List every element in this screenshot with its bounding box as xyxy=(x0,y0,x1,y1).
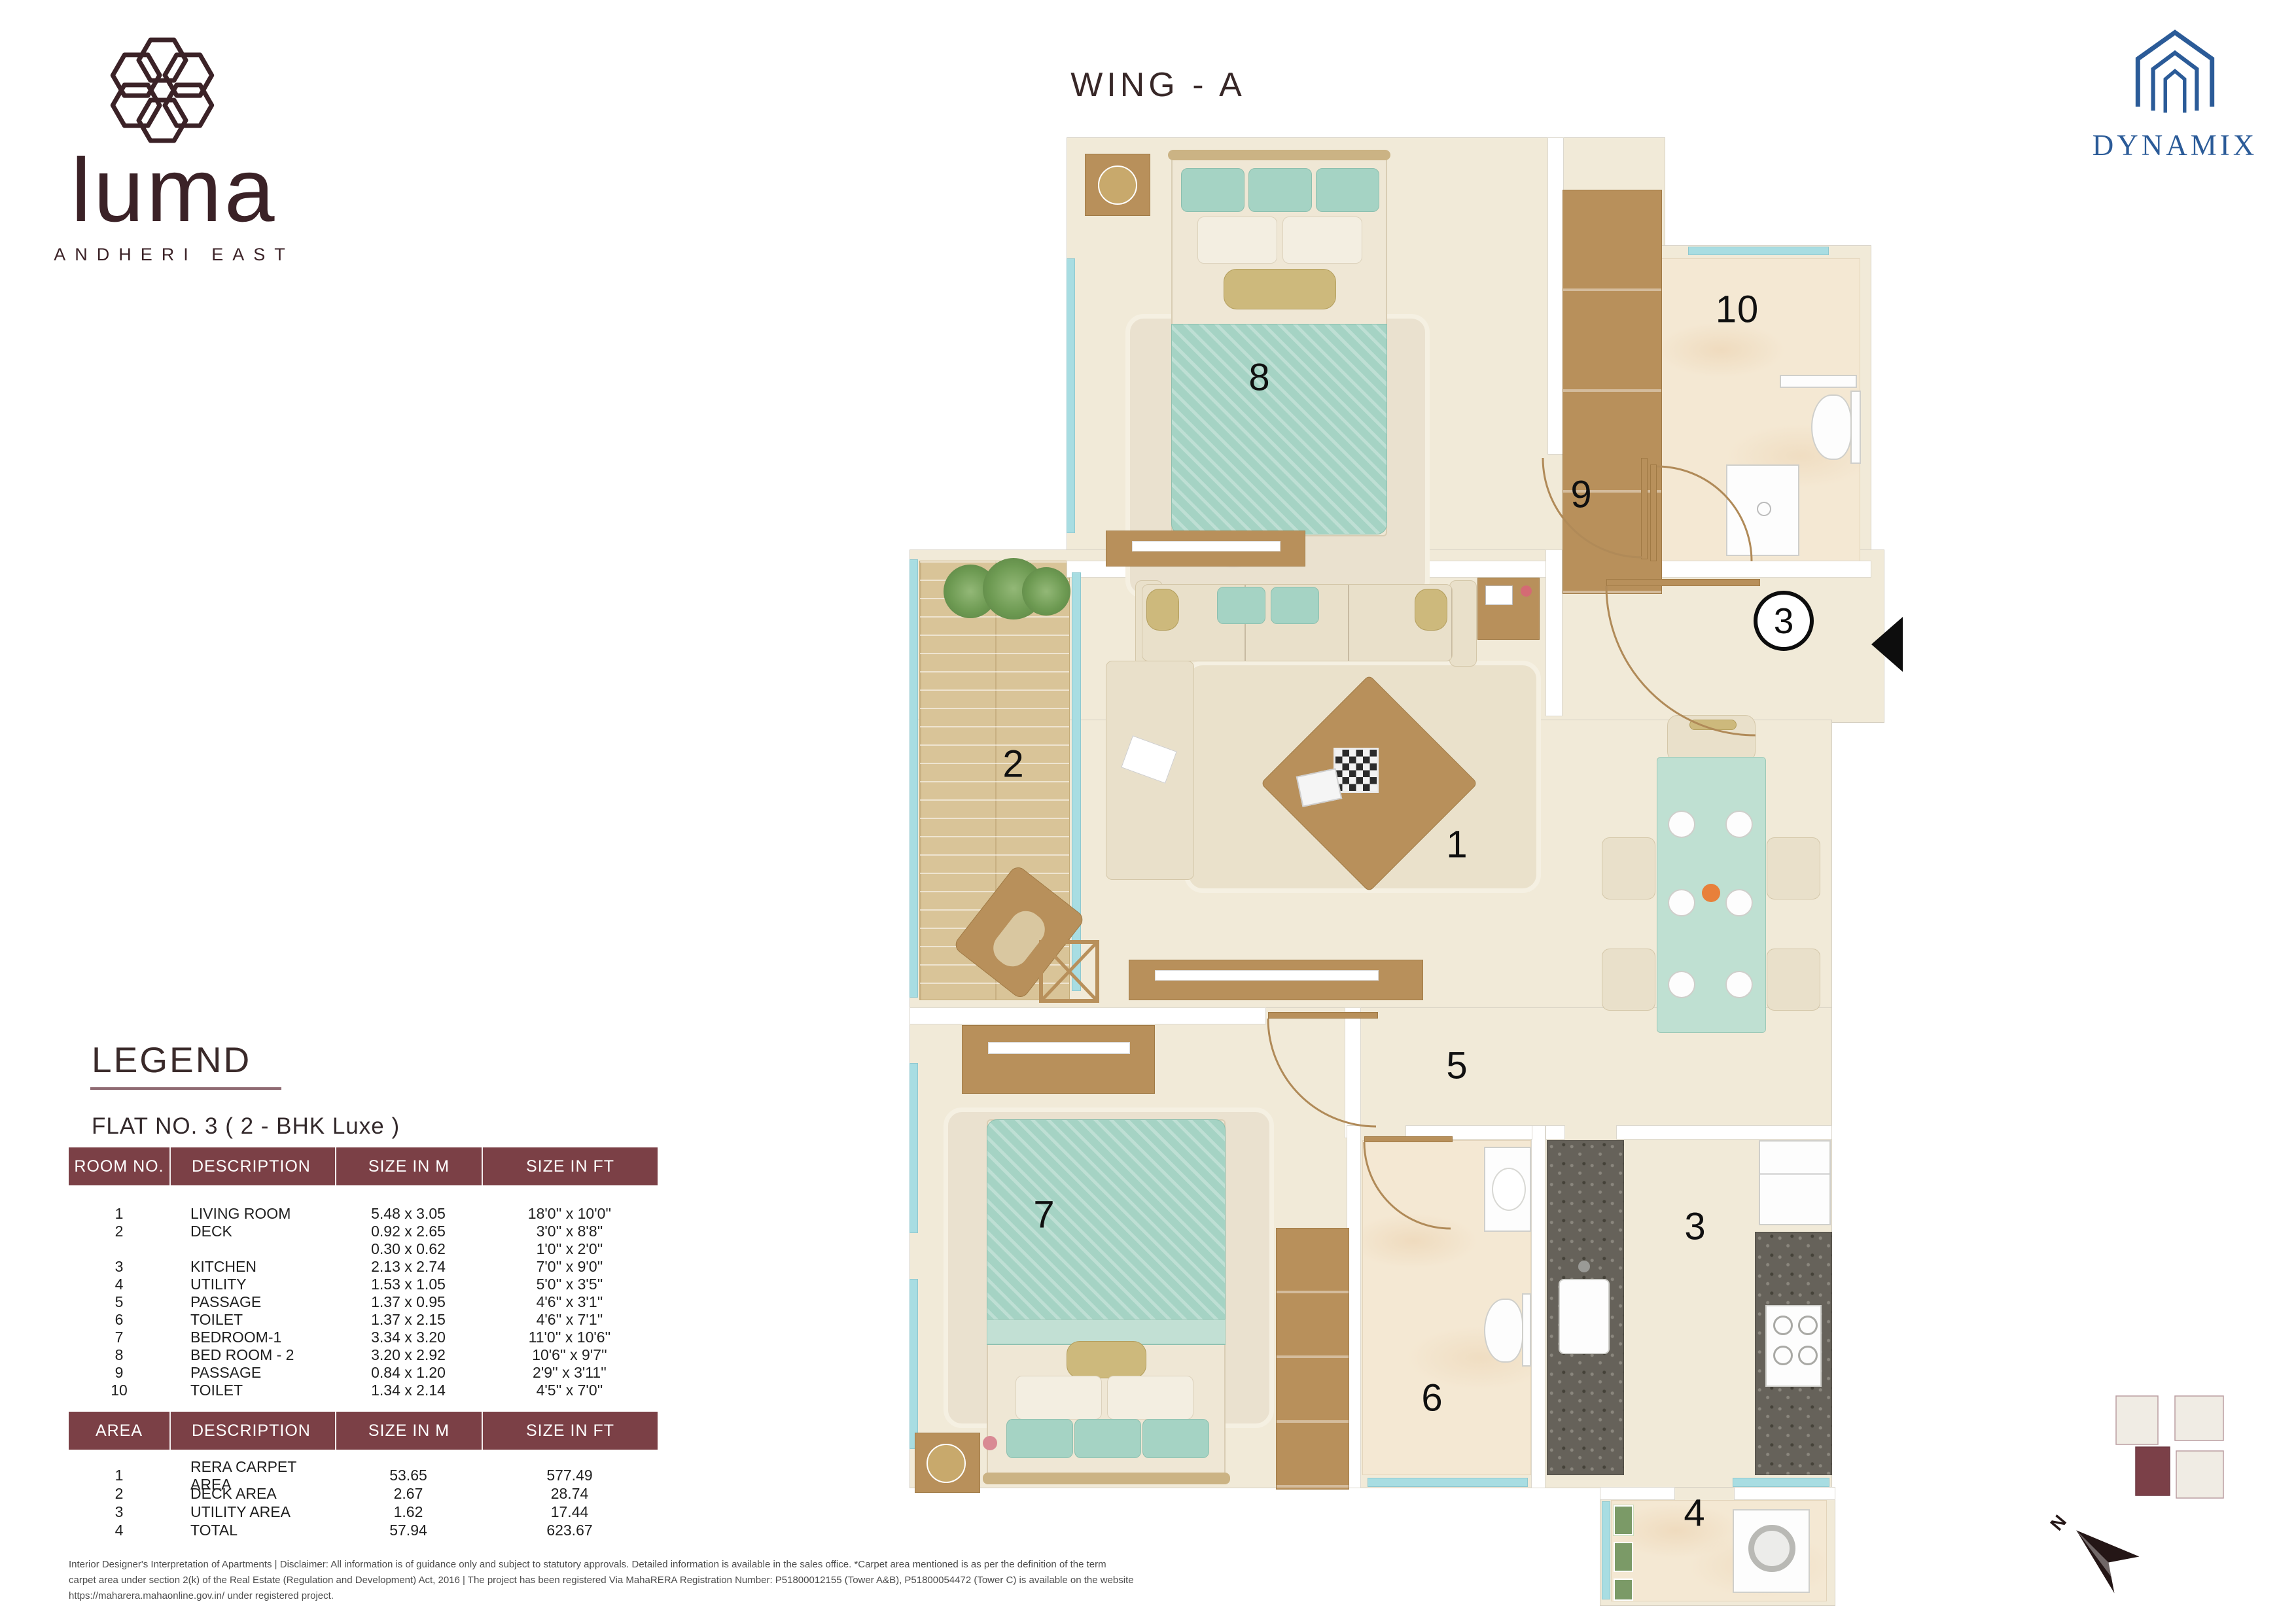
wall xyxy=(1547,137,1564,455)
cell-description: TOILET xyxy=(169,1311,335,1329)
cell-size-ft: 4'6'' x 7'1'' xyxy=(482,1311,658,1329)
refrigerator xyxy=(1759,1140,1831,1225)
room-number-living: 1 xyxy=(1446,823,1468,867)
cell-size-ft: 18'0'' x 10'0'' xyxy=(482,1205,658,1223)
toilet2-wc-tank xyxy=(1850,391,1861,464)
cell-size-m: 1.37 x 2.15 xyxy=(335,1311,482,1329)
table-row: 5 PASSAGE 1.37 x 0.95 4'6'' x 3'1'' xyxy=(69,1293,658,1311)
toilet1-wc-bowl xyxy=(1484,1299,1523,1363)
column-header: DESCRIPTION xyxy=(169,1147,335,1185)
room-number-passage: 5 xyxy=(1446,1044,1468,1088)
cell-size-m: 1.34 x 2.14 xyxy=(335,1382,482,1399)
door-swing-toilet1 xyxy=(1364,1142,1451,1229)
deck-plant xyxy=(1022,567,1070,616)
window xyxy=(1733,1478,1829,1487)
cell-area-no: 1 xyxy=(69,1467,169,1484)
column-header: SIZE IN FT xyxy=(482,1147,658,1185)
north-label: N xyxy=(2046,1511,2071,1535)
cell-room-no: 1 xyxy=(69,1205,169,1223)
window xyxy=(1368,1478,1528,1487)
plate xyxy=(1725,811,1753,838)
wall xyxy=(910,1007,1266,1024)
cell-size-ft: 4'5'' x 7'0'' xyxy=(482,1382,658,1399)
door-swing-entrance xyxy=(1606,586,1756,735)
nightstand-decor xyxy=(1098,166,1137,205)
entrance-direction-arrow-icon xyxy=(1871,617,1903,672)
column-header: SIZE IN FT xyxy=(482,1412,658,1450)
cell-size-m: 2.13 x 2.74 xyxy=(335,1258,482,1276)
window xyxy=(910,559,918,998)
dining-chair xyxy=(1602,949,1655,1011)
plate xyxy=(1668,971,1695,998)
pillow xyxy=(1006,1419,1073,1458)
disclaimer-line: https://maharera.mahaonline.gov.in/ unde… xyxy=(69,1588,1116,1604)
cell-size-ft: 17.44 xyxy=(482,1503,658,1521)
sofa-cushion-gold xyxy=(1146,589,1179,631)
washing-machine-drum xyxy=(1748,1525,1795,1572)
pillow xyxy=(1316,168,1379,212)
pillow xyxy=(1016,1376,1102,1420)
bed-headboard xyxy=(1168,150,1390,160)
cell-size-m: 5.48 x 3.05 xyxy=(335,1205,482,1223)
cell-size-ft: 577.49 xyxy=(482,1467,658,1484)
sofa-cushion-teal xyxy=(1217,587,1265,624)
disclaimer-line: carpet area under section 2(k) of the Re… xyxy=(69,1573,1116,1588)
column-header: SIZE IN M xyxy=(335,1147,482,1185)
table-row: 10 TOILET 1.34 x 2.14 4'5'' x 7'0'' xyxy=(69,1382,658,1399)
cell-description: UTILITY xyxy=(169,1276,335,1293)
door-leaf-entrance xyxy=(1606,579,1760,586)
luma-location-label: ANDHERI EAST xyxy=(46,245,302,265)
cell-size-ft: 10'6'' x 9'7'' xyxy=(482,1346,658,1364)
cell-size-ft: 1'0'' x 2'0'' xyxy=(482,1240,658,1258)
bolster-pillow xyxy=(1067,1341,1146,1378)
table-row: 2 DECK AREA 2.67 28.74 xyxy=(69,1485,658,1503)
entrance-flat-number: 3 xyxy=(1774,600,1794,642)
cell-room-no: 2 xyxy=(69,1223,169,1240)
shower-drain xyxy=(1757,502,1771,516)
door-swing-bedroom2 xyxy=(1543,458,1642,557)
cell-room-no: 4 xyxy=(69,1276,169,1293)
cell-area-no: 2 xyxy=(69,1485,169,1503)
cell-size-ft: 623.67 xyxy=(482,1522,658,1539)
luma-logo-icon xyxy=(97,25,228,156)
cell-size-ft: 28.74 xyxy=(482,1485,658,1503)
hob-burner xyxy=(1773,1346,1793,1365)
room-number-toilet2: 10 xyxy=(1716,288,1759,332)
cell-area-no: 3 xyxy=(69,1503,169,1521)
hob-burner xyxy=(1798,1346,1818,1365)
sofa-armrest xyxy=(1449,580,1477,667)
flower-decor xyxy=(983,1436,997,1450)
cell-size-m: 1.53 x 1.05 xyxy=(335,1276,482,1293)
table-row: 9 PASSAGE 0.84 x 1.20 2'9'' x 3'11'' xyxy=(69,1364,658,1382)
cell-size-m: 0.30 x 0.62 xyxy=(335,1240,482,1258)
table-row: 7 BEDROOM-1 3.34 x 3.20 11'0'' x 10'6'' xyxy=(69,1329,658,1346)
sofa-cushion-gold xyxy=(1415,589,1447,631)
wall xyxy=(1531,1125,1545,1488)
room-number-bedroom2: 8 xyxy=(1248,356,1270,400)
toilet2-wc-bowl xyxy=(1811,394,1852,460)
room-number-passage2: 9 xyxy=(1570,473,1592,517)
pillow xyxy=(1074,1419,1141,1458)
cell-description: BED ROOM - 2 xyxy=(169,1346,335,1364)
room-number-utility: 4 xyxy=(1684,1492,1705,1535)
kitchen-faucet xyxy=(1578,1261,1590,1272)
flower-decor xyxy=(1521,585,1532,597)
cell-description: KITCHEN xyxy=(169,1258,335,1276)
telephone xyxy=(1485,585,1513,605)
door-leaf-toilet2 xyxy=(1650,464,1657,561)
window xyxy=(1688,247,1829,255)
chessboard xyxy=(1333,748,1379,793)
dining-chair xyxy=(1767,949,1820,1011)
dining-chair xyxy=(1767,837,1820,899)
north-arrow-icon xyxy=(2069,1523,2142,1596)
cell-room-no: 9 xyxy=(69,1364,169,1382)
cell-size-ft: 3'0'' x 8'8'' xyxy=(482,1223,658,1240)
cell-size-ft: 2'9'' x 3'11'' xyxy=(482,1364,658,1382)
bolster-pillow xyxy=(1224,269,1336,309)
kitchen-sink xyxy=(1559,1279,1610,1354)
cell-size-m: 3.34 x 3.20 xyxy=(335,1329,482,1346)
dining-chair xyxy=(1602,837,1655,899)
cell-description: TOILET xyxy=(169,1382,335,1399)
hob-burner xyxy=(1773,1316,1793,1335)
cell-room-no: 6 xyxy=(69,1311,169,1329)
room-table-header: ROOM NO. DESCRIPTION SIZE IN M SIZE IN F… xyxy=(69,1147,658,1185)
door-leaf-bedroom1 xyxy=(1268,1012,1378,1019)
planter-box xyxy=(1614,1505,1633,1535)
tv-shelf xyxy=(1155,970,1379,981)
window xyxy=(1067,258,1075,533)
legend-divider xyxy=(90,1087,281,1090)
pillow xyxy=(1181,168,1245,212)
wall xyxy=(1600,1487,1675,1500)
nightstand-decor xyxy=(927,1444,966,1483)
flat-title: FLAT NO. 3 ( 2 - BHK Luxe ) xyxy=(92,1113,400,1140)
washbasin-bowl xyxy=(1492,1168,1526,1211)
room-number-deck: 2 xyxy=(1002,742,1024,786)
cell-size-ft: 5'0'' x 3'5'' xyxy=(482,1276,658,1293)
window xyxy=(1602,1501,1610,1599)
cell-description: PASSAGE xyxy=(169,1293,335,1311)
table-row: 6 TOILET 1.37 x 2.15 4'6'' x 7'1'' xyxy=(69,1311,658,1329)
cell-room-no: 3 xyxy=(69,1258,169,1276)
planter-box xyxy=(1614,1542,1633,1572)
room-number-bedroom1: 7 xyxy=(1033,1193,1055,1237)
wall xyxy=(1646,561,1871,578)
table-row: 3 UTILITY AREA 1.62 17.44 xyxy=(69,1503,658,1521)
cell-size-ft: 4'6'' x 3'1'' xyxy=(482,1293,658,1311)
cell-size-m: 1.62 xyxy=(335,1503,482,1521)
table-row: 4 UTILITY 1.53 x 1.05 5'0'' x 3'5'' xyxy=(69,1276,658,1293)
cell-size-m: 1.37 x 0.95 xyxy=(335,1293,482,1311)
brochure-page: { "header": { "wing_title": "WING - A", … xyxy=(0,0,2296,1623)
wall xyxy=(1545,550,1563,716)
room-number-kitchen: 3 xyxy=(1684,1205,1706,1249)
pillow xyxy=(1142,1419,1209,1458)
table-row: 1 LIVING ROOM 5.48 x 3.05 18'0'' x 10'0'… xyxy=(69,1205,658,1223)
pillow xyxy=(1197,217,1277,264)
developer-name: DYNAMIX xyxy=(2079,128,2270,162)
key-plan xyxy=(2112,1392,2230,1507)
wall xyxy=(1734,1487,1835,1500)
dresser-shelf xyxy=(988,1042,1130,1054)
plate xyxy=(1725,889,1753,916)
cell-size-ft: 7'0'' x 9'0'' xyxy=(482,1258,658,1276)
cell-room-no: 7 xyxy=(69,1329,169,1346)
plate xyxy=(1725,971,1753,998)
column-header: ROOM NO. xyxy=(69,1147,169,1185)
column-header: DESCRIPTION xyxy=(169,1412,335,1450)
door-leaf-toilet1 xyxy=(1364,1136,1453,1142)
dynamix-logo-icon xyxy=(2132,20,2218,123)
dresser-shelf xyxy=(1132,541,1280,551)
planter-box xyxy=(1614,1579,1633,1601)
plate xyxy=(1668,889,1695,916)
pillow xyxy=(1248,168,1312,212)
sofa-cushion-teal xyxy=(1271,587,1319,624)
window xyxy=(910,1063,918,1233)
cell-size-m: 3.20 x 2.92 xyxy=(335,1346,482,1364)
room-number-toilet1: 6 xyxy=(1421,1376,1443,1420)
bedroom1-wardrobe xyxy=(1276,1228,1349,1490)
table-row: 0.30 x 0.62 1'0'' x 2'0'' xyxy=(69,1240,658,1258)
bed-headboard xyxy=(983,1473,1230,1484)
cell-size-m: 53.65 xyxy=(335,1467,482,1484)
table-row: 4 TOTAL 57.94 623.67 xyxy=(69,1522,658,1539)
disclaimer-line: Interior Designer's Interpretation of Ap… xyxy=(69,1557,1116,1573)
wall xyxy=(1545,1125,1565,1140)
legend-title: LEGEND xyxy=(92,1039,251,1081)
cell-description: BEDROOM-1 xyxy=(169,1329,335,1346)
cell-area-no: 4 xyxy=(69,1522,169,1539)
bedroom2-duvet xyxy=(1171,324,1387,534)
key-plan-highlighted-unit xyxy=(2136,1447,2170,1495)
cell-size-ft: 11'0'' x 10'6'' xyxy=(482,1329,658,1346)
cell-size-m: 57.94 xyxy=(335,1522,482,1539)
column-header: SIZE IN M xyxy=(335,1412,482,1450)
floor-plan: 1 2 3 4 5 6 7 8 9 10 3 xyxy=(910,128,1904,1607)
table-row: 2 DECK 0.92 x 2.65 3'0'' x 8'8'' xyxy=(69,1223,658,1240)
cell-room-no: 8 xyxy=(69,1346,169,1364)
pillow xyxy=(1107,1376,1193,1420)
cell-description: LIVING ROOM xyxy=(169,1205,335,1223)
column-header: AREA xyxy=(69,1412,169,1450)
luma-wordmark: luma xyxy=(46,145,302,236)
fruit-bowl xyxy=(1702,884,1720,902)
window xyxy=(910,1279,918,1449)
cell-size-m: 0.84 x 1.20 xyxy=(335,1364,482,1382)
pillow xyxy=(1282,217,1362,264)
cell-description: UTILITY AREA xyxy=(169,1503,335,1521)
door-swing-toilet2 xyxy=(1657,466,1752,561)
cell-size-m: 2.67 xyxy=(335,1485,482,1503)
wall xyxy=(1616,1125,1832,1140)
table-row: 3 KITCHEN 2.13 x 2.74 7'0'' x 9'0'' xyxy=(69,1258,658,1276)
cell-size-m: 0.92 x 2.65 xyxy=(335,1223,482,1240)
toilet1-wc-tank xyxy=(1522,1293,1531,1367)
table-row: 1 RERA CARPET AREA 53.65 577.49 xyxy=(69,1467,658,1484)
toilet2-shelf xyxy=(1780,375,1857,388)
cell-description: PASSAGE xyxy=(169,1364,335,1382)
cell-description: DECK AREA xyxy=(169,1485,335,1503)
disclaimer: Interior Designer's Interpretation of Ap… xyxy=(69,1557,1116,1604)
bedroom1-dresser xyxy=(962,1025,1155,1094)
area-table-header: AREA DESCRIPTION SIZE IN M SIZE IN FT xyxy=(69,1412,658,1450)
cell-description: DECK xyxy=(169,1223,335,1240)
wing-title: WING - A xyxy=(1050,65,1266,105)
cell-room-no: 10 xyxy=(69,1382,169,1399)
table-row: 8 BED ROOM - 2 3.20 x 2.92 10'6'' x 9'7'… xyxy=(69,1346,658,1364)
hob-burner xyxy=(1798,1316,1818,1335)
plate xyxy=(1668,811,1695,838)
door-swing-bedroom1 xyxy=(1268,1019,1376,1126)
bedroom1-duvet xyxy=(987,1119,1226,1345)
entrance-flat-number-marker: 3 xyxy=(1754,591,1814,651)
deck-side-table xyxy=(1039,940,1099,1003)
cell-description: TOTAL xyxy=(169,1522,335,1539)
cell-room-no: 5 xyxy=(69,1293,169,1311)
